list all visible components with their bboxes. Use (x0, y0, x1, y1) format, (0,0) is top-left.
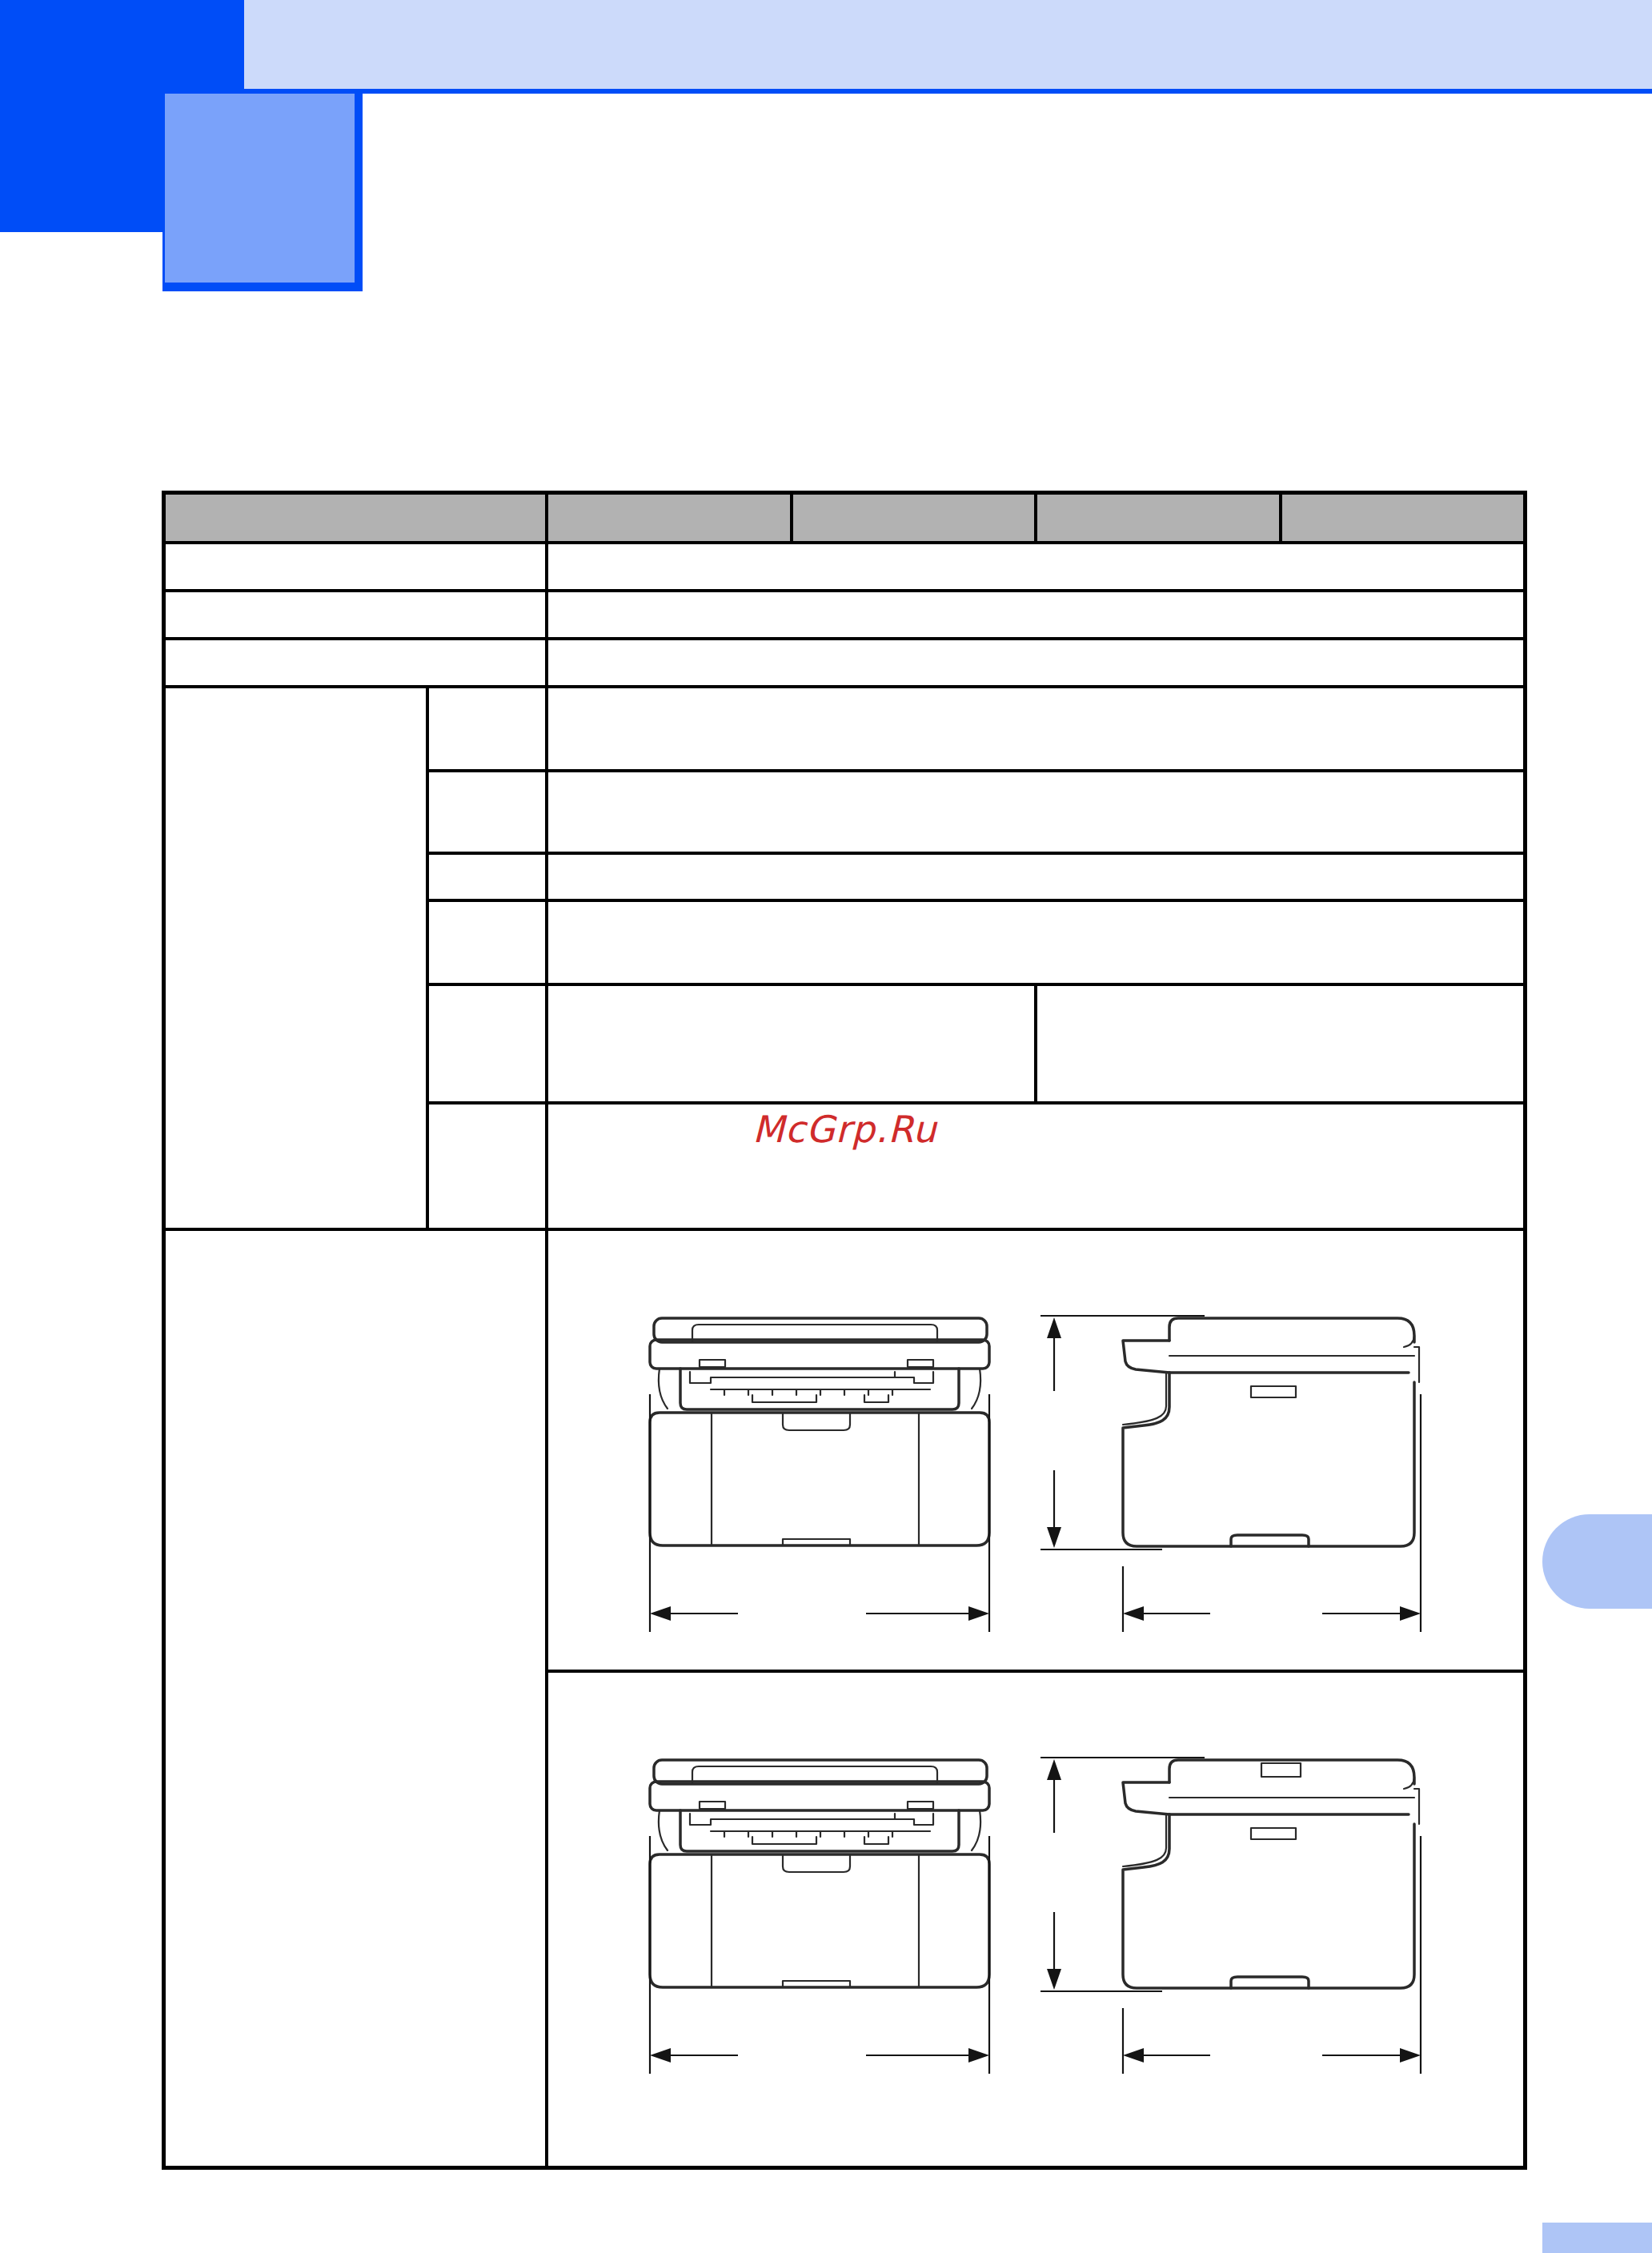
printer-front-view (650, 1318, 989, 1545)
table-border-segment (426, 852, 1523, 855)
table-border-segment (545, 495, 548, 2166)
footer-page-marker (1542, 2223, 1652, 2253)
table-border-segment (1034, 983, 1037, 1104)
table-border-segment (426, 983, 1523, 986)
printer-side-view (1123, 1318, 1419, 1546)
side-view-lid-handle (1261, 1763, 1301, 1777)
table-border-segment (790, 495, 793, 541)
chapter-square (165, 94, 355, 283)
spec-table: McGrp.Ru (162, 491, 1527, 2170)
table-border-segment (166, 589, 1523, 592)
table-border-segment (1034, 495, 1037, 541)
dimensions-figure-row-1 (552, 1230, 1523, 1667)
dimensions-figure-row-2 (552, 1672, 1523, 2163)
table-border-segment (1279, 495, 1282, 541)
table-border-segment (426, 1101, 1523, 1104)
table-border-segment (426, 685, 429, 1231)
header-side-block (0, 0, 165, 232)
watermark-text: McGrp.Ru (752, 1108, 936, 1150)
table-header-row (166, 495, 1523, 541)
height-depth-dimension-arrows (1041, 1316, 1421, 1632)
side-page-tab (1542, 1514, 1652, 1609)
header-light-band (244, 0, 1652, 90)
table-border-segment (166, 685, 1523, 688)
header-rule (244, 89, 1652, 94)
table-border-segment (426, 769, 1523, 772)
table-border-segment (166, 541, 1523, 544)
table-border-segment (166, 637, 1523, 640)
table-border-segment (426, 899, 1523, 902)
manual-page: McGrp.Ru (0, 0, 1652, 2253)
